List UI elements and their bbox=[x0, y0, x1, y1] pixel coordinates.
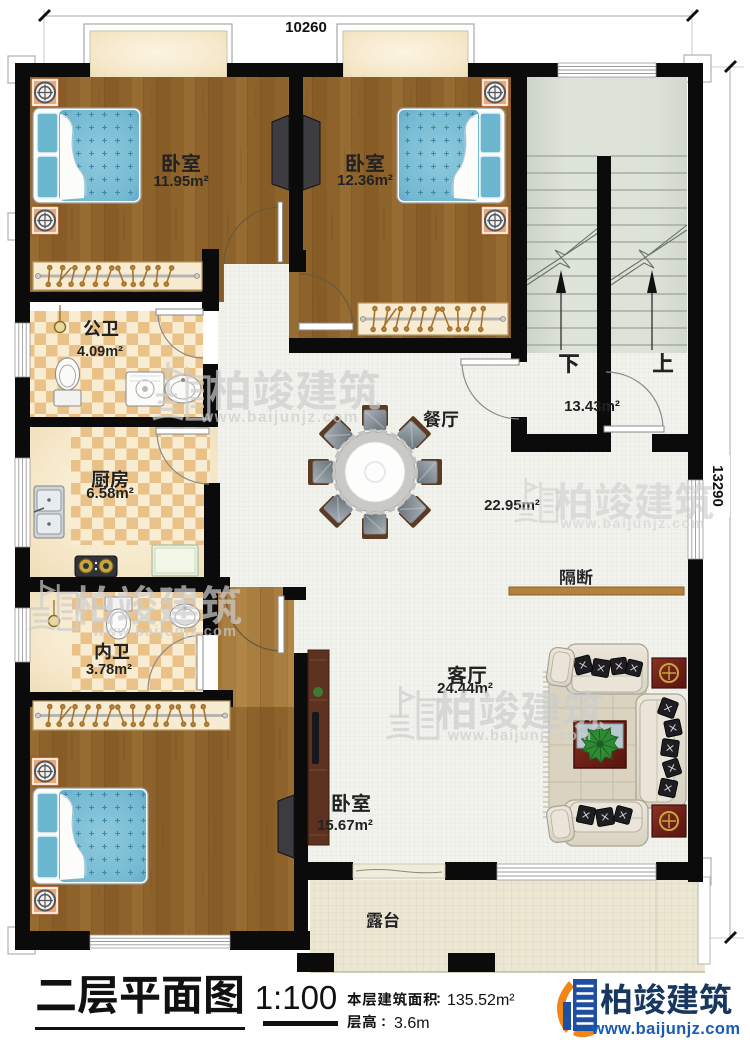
svg-text:www.baijunjz.com: www.baijunjz.com bbox=[92, 624, 237, 640]
svg-text:3.6m: 3.6m bbox=[394, 1015, 430, 1032]
svg-text::: : bbox=[436, 990, 441, 1007]
svg-text:11.95m²: 11.95m² bbox=[153, 173, 208, 190]
svg-text:www.baijunjz.com: www.baijunjz.com bbox=[560, 515, 706, 531]
svg-text:6.58m²: 6.58m² bbox=[86, 485, 134, 502]
svg-text:www.baijunjz.com: www.baijunjz.com bbox=[591, 1020, 741, 1038]
svg-text:1:100: 1:100 bbox=[255, 979, 338, 1016]
svg-text:15.67m²: 15.67m² bbox=[317, 817, 373, 834]
svg-text:3.78m²: 3.78m² bbox=[86, 662, 132, 678]
svg-text:12.36m²: 12.36m² bbox=[337, 172, 393, 189]
svg-text::: : bbox=[381, 1013, 386, 1030]
svg-text:22.95m²: 22.95m² bbox=[484, 497, 540, 514]
svg-text:10260: 10260 bbox=[285, 19, 327, 36]
svg-text:135.52m²: 135.52m² bbox=[447, 992, 515, 1009]
svg-text:13.43m²: 13.43m² bbox=[564, 398, 620, 415]
svg-text:4.09m²: 4.09m² bbox=[77, 344, 123, 360]
svg-text:www.baijunjz.com: www.baijunjz.com bbox=[447, 728, 592, 744]
svg-text:www.baijunjz.com: www.baijunjz.com bbox=[200, 409, 359, 426]
